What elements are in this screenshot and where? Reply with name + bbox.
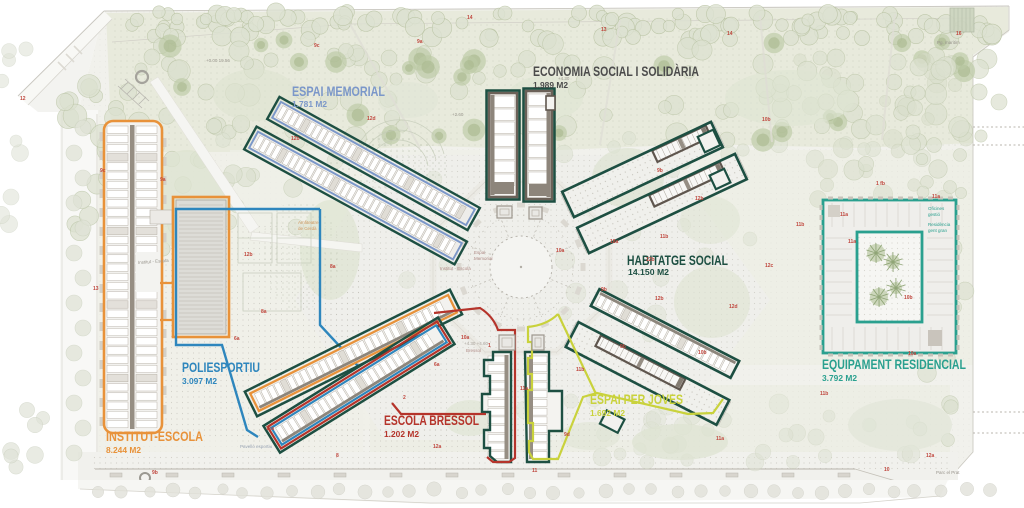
svg-text:12b: 12b — [291, 136, 300, 142]
svg-text:ESCOLA BRESSOL: ESCOLA BRESSOL — [384, 412, 479, 428]
svg-text:12a: 12a — [433, 444, 442, 450]
svg-text:11b: 11b — [796, 222, 804, 228]
svg-text:gent gran: gent gran — [928, 228, 948, 233]
svg-text:14: 14 — [727, 31, 733, 37]
svg-text:10: 10 — [884, 467, 890, 473]
svg-text:6a: 6a — [234, 336, 240, 342]
svg-text:EQUIPAMENT RESIDENCIAL: EQUIPAMENT RESIDENCIAL — [822, 356, 966, 372]
svg-text:8: 8 — [336, 453, 339, 459]
svg-text:Parc el Prat: Parc el Prat — [936, 470, 960, 475]
svg-text:11a: 11a — [840, 212, 848, 218]
svg-text:11b: 11b — [820, 391, 828, 397]
svg-text:Oficines: Oficines — [928, 206, 945, 211]
svg-text:9c: 9c — [100, 168, 106, 174]
svg-text:3.097 M2: 3.097 M2 — [182, 377, 218, 386]
svg-text:3.792 M2: 3.792 M2 — [822, 374, 858, 383]
svg-text:Amfiteatre: Amfiteatre — [298, 220, 319, 225]
svg-text:9a: 9a — [417, 39, 423, 45]
svg-text:12d: 12d — [367, 116, 376, 122]
svg-text:9b: 9b — [657, 168, 663, 174]
svg-text:8a: 8a — [261, 309, 267, 315]
svg-text:HABITATGE SOCIAL: HABITATGE SOCIAL — [627, 252, 728, 268]
svg-text:12d: 12d — [729, 304, 738, 310]
svg-text:12b: 12b — [655, 296, 664, 302]
svg-text:16: 16 — [956, 31, 962, 37]
svg-text:10a: 10a — [556, 248, 565, 254]
svg-text:11b: 11b — [660, 234, 668, 240]
svg-text:18a: 18a — [610, 239, 619, 245]
svg-text:14: 14 — [467, 15, 473, 21]
svg-text:1.202 M2: 1.202 M2 — [384, 430, 420, 439]
svg-text:9c: 9c — [314, 43, 320, 49]
svg-text:+0.00 19.56: +0.00 19.56 — [206, 58, 230, 63]
svg-text:11b: 11b — [576, 367, 584, 373]
svg-text:12a: 12a — [926, 453, 935, 459]
svg-text:11: 11 — [532, 468, 538, 474]
svg-text:1.989 M2: 1.989 M2 — [533, 81, 569, 90]
svg-text:Espai: Espai — [474, 250, 485, 255]
svg-text:Memorial: Memorial — [474, 256, 493, 261]
svg-text:10b: 10b — [904, 295, 913, 301]
svg-text:11a: 11a — [520, 386, 528, 392]
svg-text:1.692 M2: 1.692 M2 — [590, 409, 626, 418]
svg-text:12: 12 — [20, 96, 26, 102]
svg-text:12c: 12c — [765, 263, 774, 269]
svg-text:gestió: gestió — [928, 212, 941, 217]
svg-text:8.244 M2: 8.244 M2 — [106, 446, 142, 455]
svg-text:Bressol: Bressol — [466, 348, 481, 353]
svg-text:9b: 9b — [620, 344, 626, 350]
svg-text:14.150 M2: 14.150 M2 — [628, 268, 670, 277]
svg-text:+4.30 +4.60: +4.30 +4.60 — [464, 341, 489, 346]
svg-text:+4.30: +4.30 — [558, 76, 570, 81]
svg-text:9d: 9d — [564, 432, 570, 438]
svg-text:de Cerdà: de Cerdà — [298, 226, 317, 231]
svg-text:ESPAI MEMORIAL: ESPAI MEMORIAL — [292, 83, 385, 99]
svg-text:Institut - Escola: Institut - Escola — [440, 266, 471, 271]
svg-text:ESPAI PER JOVES: ESPAI PER JOVES — [590, 391, 683, 407]
svg-text:Pavelló esportiu: Pavelló esportiu — [240, 444, 273, 449]
svg-text:2: 2 — [403, 395, 406, 401]
svg-text:Pg. maritim: Pg. maritim — [937, 40, 960, 45]
svg-text:11a: 11a — [266, 426, 274, 432]
svg-text:Residència: Residència — [928, 222, 951, 227]
svg-text:10a: 10a — [908, 351, 917, 357]
svg-text:13: 13 — [601, 27, 607, 33]
svg-text:12b: 12b — [646, 257, 655, 263]
svg-text:11a: 11a — [848, 239, 856, 245]
svg-text:+2.60: +2.60 — [452, 112, 464, 117]
svg-text:10b: 10b — [698, 350, 707, 356]
svg-text:1: 1 — [488, 343, 491, 349]
svg-text:11a: 11a — [716, 436, 724, 442]
svg-text:6a: 6a — [434, 362, 440, 368]
svg-text:9a: 9a — [160, 177, 166, 183]
svg-text:11a: 11a — [932, 194, 940, 200]
svg-text:POLIESPORTIU: POLIESPORTIU — [182, 359, 260, 375]
svg-text:9b: 9b — [601, 287, 607, 293]
svg-text:10b: 10b — [762, 117, 771, 123]
svg-text:INSTITUT-ESCOLA: INSTITUT-ESCOLA — [106, 428, 203, 444]
svg-text:12b: 12b — [695, 196, 704, 202]
svg-text:1 fb: 1 fb — [876, 181, 885, 187]
svg-text:12b: 12b — [244, 252, 253, 258]
svg-text:1.781 M2: 1.781 M2 — [292, 100, 328, 109]
svg-text:13: 13 — [93, 286, 99, 292]
svg-text:8a: 8a — [330, 264, 336, 270]
svg-text:9b: 9b — [152, 470, 158, 476]
